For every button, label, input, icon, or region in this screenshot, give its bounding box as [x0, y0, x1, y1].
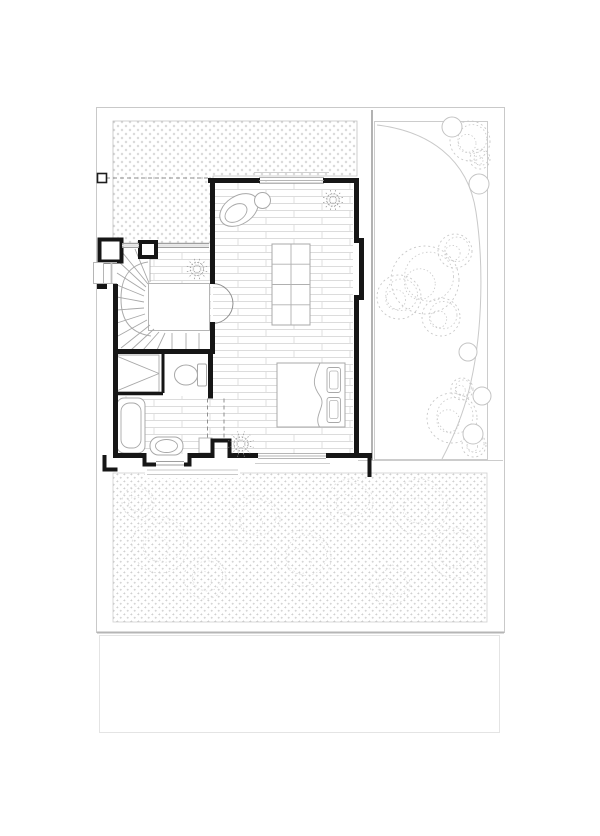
garden-tree [458, 134, 476, 152]
garden-border [375, 122, 488, 460]
garden-tree [405, 252, 454, 301]
wardrobe [114, 355, 159, 392]
garden-tree [455, 380, 471, 396]
side-table [255, 193, 271, 209]
exterior-step-band [145, 467, 240, 478]
side-door-recess [94, 263, 104, 284]
entry-vestibule [100, 240, 122, 262]
stair-landing [149, 284, 210, 331]
garden-bush [459, 343, 477, 361]
garden-bush [442, 117, 462, 137]
garden-tree [386, 290, 406, 310]
bedroom-window-south [258, 454, 326, 459]
garden-bush [473, 387, 491, 405]
garden-tree [445, 245, 460, 260]
toilet-tank [198, 364, 207, 386]
south-paving [113, 473, 487, 622]
wall-stub [97, 284, 107, 289]
garden-tree [455, 385, 465, 395]
garden-tree [422, 298, 460, 336]
garden-bush [463, 424, 483, 444]
shower-tray [199, 438, 212, 453]
floor-plan-drawing [0, 0, 600, 836]
wall-right [357, 178, 362, 458]
south-lot [100, 636, 500, 733]
bath-window-south [156, 462, 184, 466]
garden-tree [405, 269, 436, 300]
garden-tree [430, 311, 447, 328]
floor-plan-sheet [0, 0, 600, 836]
side-door-jambs [104, 263, 117, 284]
survey-marker [98, 174, 107, 183]
plan-shapes [94, 108, 505, 733]
garden-tree [430, 301, 457, 328]
garden-tree [445, 237, 469, 261]
garden-bush [469, 174, 489, 194]
pillar [140, 242, 156, 257]
toilet-bowl [175, 365, 198, 385]
garden-tree [391, 246, 459, 314]
